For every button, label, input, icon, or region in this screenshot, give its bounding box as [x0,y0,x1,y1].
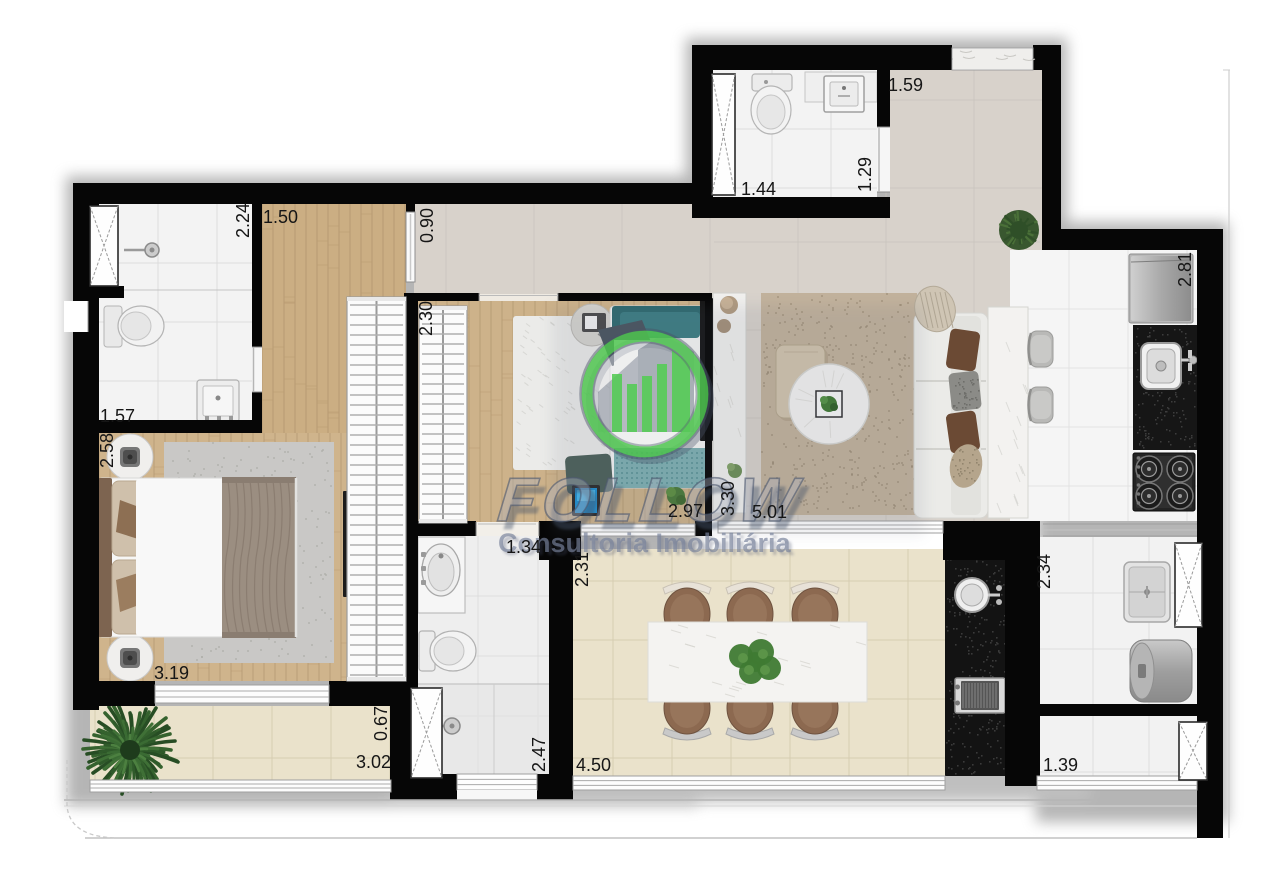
svg-text:1.39: 1.39 [1043,755,1078,775]
svg-text:1.57: 1.57 [100,406,135,426]
svg-text:0.90: 0.90 [417,208,437,243]
svg-text:1.59: 1.59 [888,75,923,95]
svg-text:4.50: 4.50 [576,755,611,775]
svg-text:2.58: 2.58 [97,433,117,468]
svg-text:2.81: 2.81 [1175,252,1195,287]
svg-text:5.01: 5.01 [752,502,787,522]
svg-text:1.50: 1.50 [263,207,298,227]
svg-text:2.30: 2.30 [416,301,436,336]
svg-text:2.24: 2.24 [233,203,253,238]
svg-text:1.34: 1.34 [506,537,541,557]
svg-text:2.34: 2.34 [1034,554,1054,589]
svg-text:1.44: 1.44 [741,179,776,199]
svg-text:3.19: 3.19 [154,663,189,683]
svg-text:2.97: 2.97 [668,501,703,521]
svg-text:FOLLOW: FOLLOW [495,466,807,535]
svg-text:3.02: 3.02 [356,752,391,772]
svg-text:2.47: 2.47 [529,737,549,772]
svg-text:0.67: 0.67 [371,706,391,741]
svg-text:1.29: 1.29 [855,157,875,192]
svg-text:3.30: 3.30 [718,481,738,516]
svg-text:Consultoria Imobiliária: Consultoria Imobiliária [498,528,792,558]
svg-text:2.31: 2.31 [572,552,592,587]
